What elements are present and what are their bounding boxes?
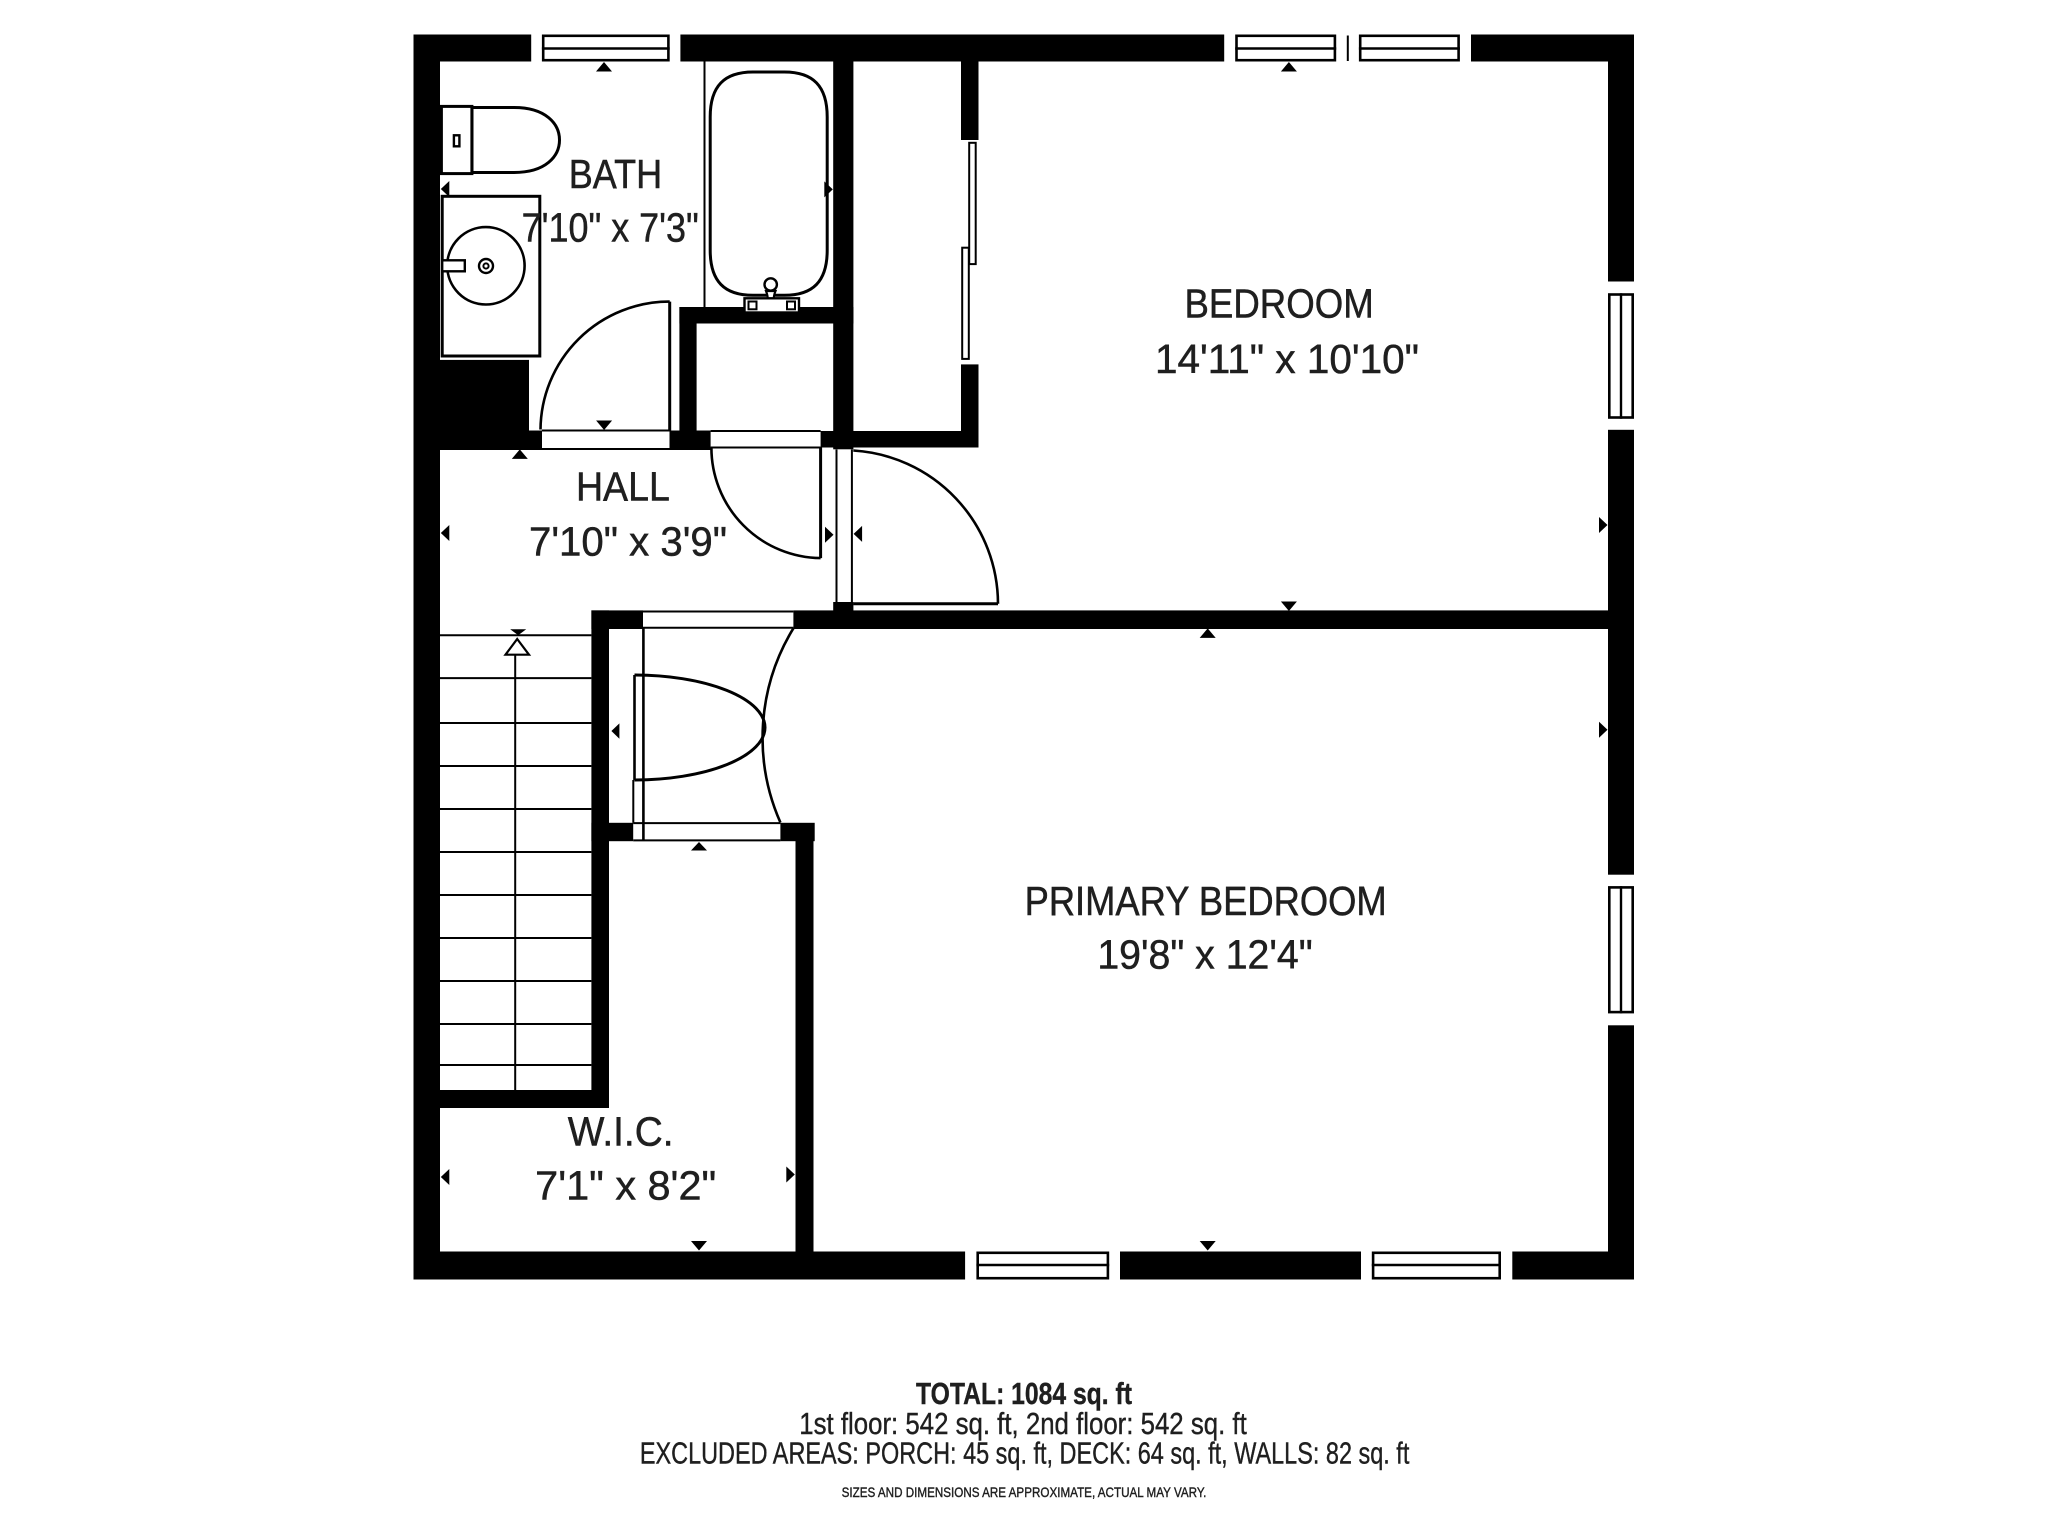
svg-text:7'10" x 7'3": 7'10" x 7'3" — [522, 204, 699, 250]
svg-text:14'11" x 10'10": 14'11" x 10'10" — [1155, 336, 1419, 382]
svg-text:HALL: HALL — [576, 463, 670, 509]
svg-text:EXCLUDED AREAS: PORCH: 45 sq.: EXCLUDED AREAS: PORCH: 45 sq. ft, DECK: … — [640, 1436, 1410, 1471]
svg-text:PRIMARY BEDROOM: PRIMARY BEDROOM — [1025, 878, 1387, 924]
svg-text:BATH: BATH — [569, 151, 662, 197]
svg-text:W.I.C.: W.I.C. — [568, 1109, 674, 1155]
svg-text:7'10" x 3'9": 7'10" x 3'9" — [529, 519, 727, 565]
svg-text:7'1" x 8'2": 7'1" x 8'2" — [535, 1163, 716, 1209]
svg-text:BEDROOM: BEDROOM — [1185, 281, 1374, 327]
svg-text:19'8" x 12'4": 19'8" x 12'4" — [1097, 931, 1312, 977]
svg-text:SIZES AND DIMENSIONS ARE APPRO: SIZES AND DIMENSIONS ARE APPROXIMATE, AC… — [842, 1485, 1207, 1500]
